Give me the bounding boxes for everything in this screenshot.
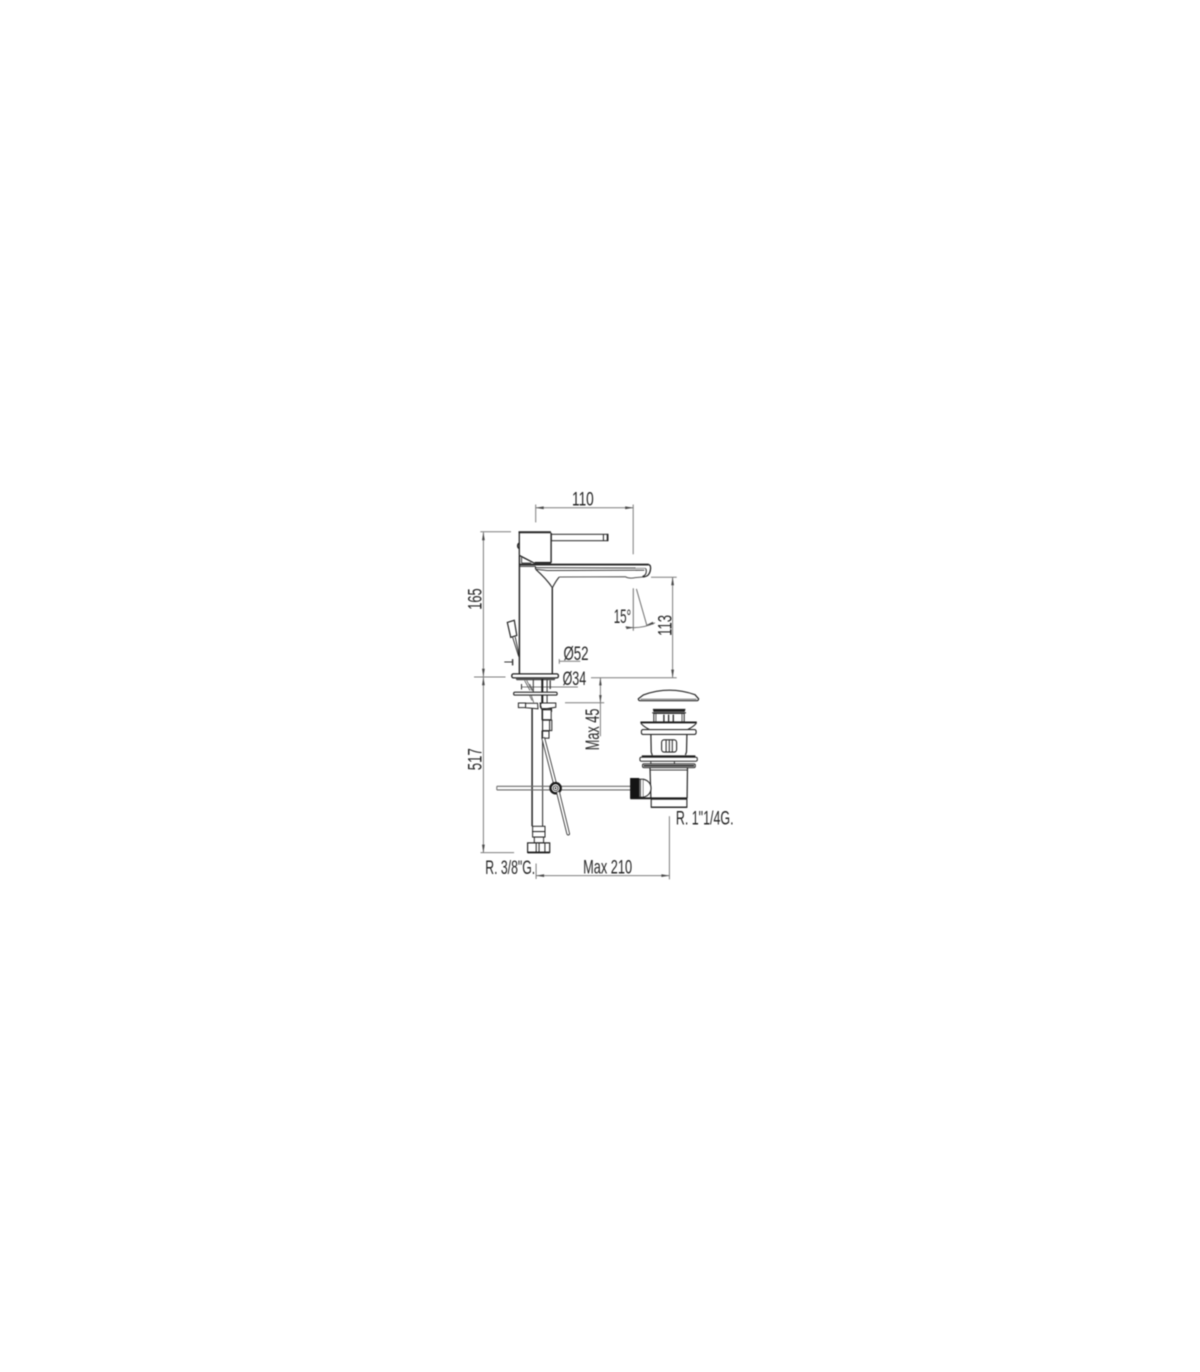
svg-text:R. 3/8"G.: R. 3/8"G.: [485, 857, 535, 879]
svg-text:517: 517: [465, 748, 487, 770]
svg-text:165: 165: [465, 588, 487, 609]
svg-text:R. 1"1/4G.: R. 1"1/4G.: [676, 807, 734, 829]
svg-text:Ø52: Ø52: [563, 643, 588, 665]
svg-text:113: 113: [654, 615, 676, 636]
svg-text:15°: 15°: [614, 606, 632, 628]
svg-text:110: 110: [572, 488, 594, 510]
svg-text:Ø34: Ø34: [563, 668, 587, 690]
svg-text:Max 210: Max 210: [583, 857, 632, 879]
svg-text:Max 45: Max 45: [582, 709, 604, 751]
